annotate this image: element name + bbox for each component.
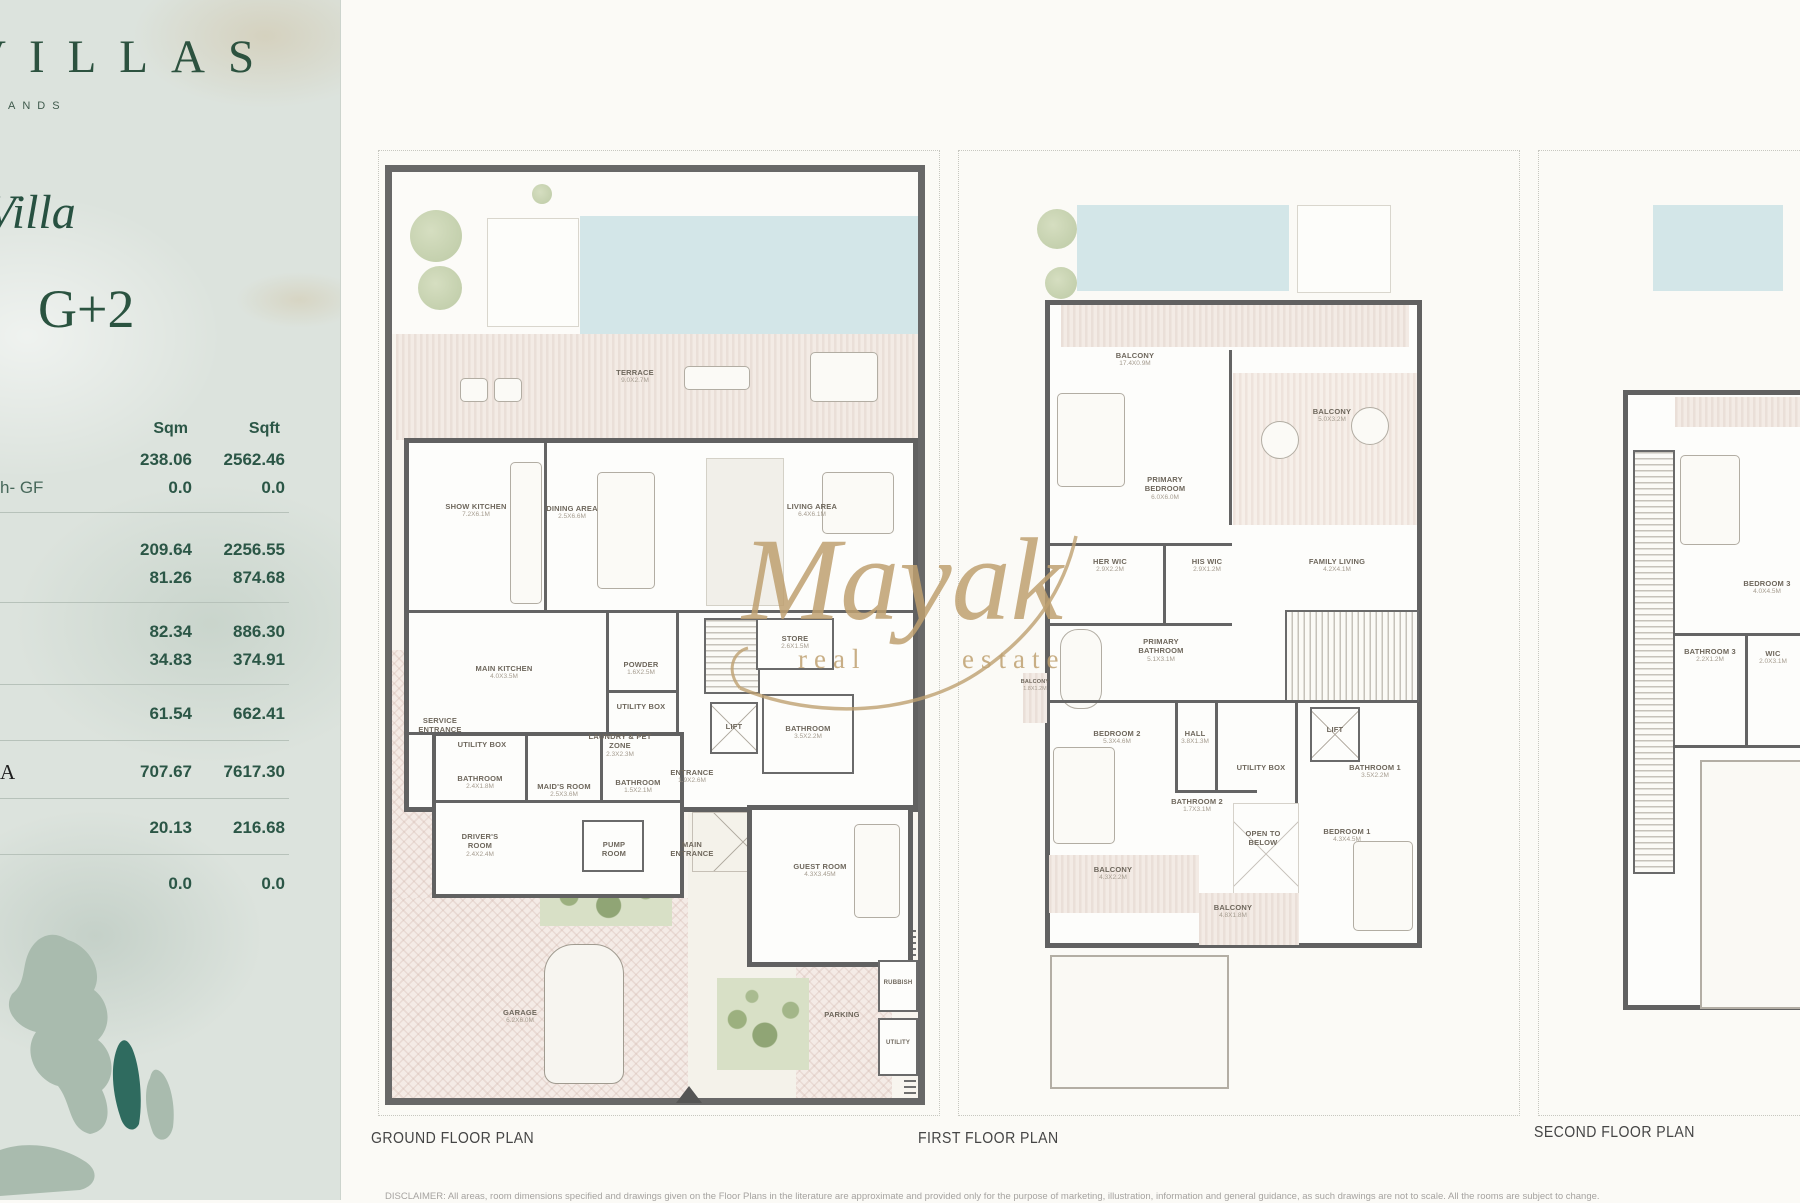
row-label-fragment: h- GF <box>0 478 43 498</box>
pool <box>1077 205 1289 291</box>
furniture-sketch <box>810 352 878 402</box>
room-label-garage: GARAGE6.2X6.0M <box>478 1008 562 1026</box>
pool <box>580 216 918 334</box>
room-label-terrace: TERRACE 9.0X2.7M <box>593 368 677 386</box>
first-plan-title: FIRST FLOOR PLAN <box>918 1130 1059 1148</box>
island-shape <box>9 935 112 1134</box>
room-label-utility-box-2: UTILITY BOX <box>452 740 512 749</box>
dining-table-sketch <box>597 472 655 589</box>
roof-terrace-outline <box>1700 760 1800 1009</box>
interior-wall <box>1050 623 1232 626</box>
area-table: Sqm Sqft 238.06 2562.46 h- GF 0.0 0.0 20… <box>0 0 340 930</box>
room-label-pump-room: PUMP ROOM <box>592 840 636 859</box>
floorplan-brochure-page: { "sidebar": { "logo_text": "VILLAS", "l… <box>0 0 1800 1200</box>
room-label-bedroom-3: BEDROOM 34.0X4.5M <box>1725 579 1800 597</box>
interior-wall <box>1295 703 1298 803</box>
room-label-powder: POWDER1.6X2.5M <box>599 660 683 678</box>
stairs <box>1633 450 1675 874</box>
room-label-balcony-bl: BALCONY4.3X2.2M <box>1071 865 1155 883</box>
entrance-arrow-marker <box>676 1086 702 1103</box>
ground-plan: TERRACE 9.0X2.7M SHOW KITCHEN7.2X6.1M DI… <box>392 172 918 1098</box>
islands-map <box>0 928 210 1200</box>
pavilion-sketch <box>1297 205 1391 293</box>
room-label-balcony-bc: BALCONY4.8X1.8M <box>1191 903 1275 921</box>
tree-icon <box>410 210 462 262</box>
lift-shaft <box>1310 707 1360 762</box>
furniture-sketch <box>684 366 750 390</box>
furniture-sketch <box>494 378 522 402</box>
table-divider <box>0 602 289 603</box>
tree-icon <box>532 184 552 204</box>
table-row: 209.64 2256.55 <box>0 540 288 558</box>
kitchen-island-sketch <box>510 462 542 604</box>
interior-wall <box>1215 703 1218 793</box>
room-label-family-living: FAMILY LIVING4.2X4.1M <box>1295 557 1379 575</box>
disclaimer-text: DISCLAIMER: All areas, room dimensions s… <box>385 1191 1800 1203</box>
room-label-bedroom-1: BEDROOM 14.3X4.5M <box>1305 827 1389 845</box>
room-label-utility: UTILITY <box>878 1040 918 1048</box>
bed-sketch <box>1057 393 1125 487</box>
ground-plan-title: GROUND FLOOR PLAN <box>371 1130 534 1148</box>
interior-wall <box>525 736 528 800</box>
bed-sketch <box>1680 455 1740 545</box>
room-label-service-entrance: SERVICE ENTRANCE <box>412 716 468 735</box>
room-label-her-wic: HER WIC2.9X2.2M <box>1068 557 1152 575</box>
interior-wall <box>1175 790 1257 793</box>
media-wall-sketch <box>706 458 784 606</box>
interior-wall <box>1050 543 1232 546</box>
table-row: 82.34 886.30 <box>0 622 288 640</box>
interior-wall <box>1673 745 1800 748</box>
room-label-bathroom-gf: BATHROOM3.5X2.2M <box>766 724 850 742</box>
room-label-lift: LIFT <box>714 722 754 731</box>
table-row: 0.0 0.0 <box>0 874 288 892</box>
bed-sketch <box>1053 747 1115 844</box>
room-label-rubbish: RUBBISH <box>878 980 918 988</box>
room-label-primary-bedroom: PRIMARY BEDROOM6.0X6.0M <box>1135 475 1195 502</box>
pavilion-sketch <box>487 218 579 327</box>
room-label-balcony-right: BALCONY5.0X3.2M <box>1290 407 1374 425</box>
room-label-bedroom-2: BEDROOM 25.3X4.6M <box>1075 729 1159 747</box>
first-plan: BALCONY17.4X0.9M PRIMARY BEDROOM6.0X6.0M… <box>965 155 1505 1105</box>
open-to-below-void <box>1233 803 1299 905</box>
balcony-deck <box>1049 855 1199 913</box>
room-label-bathroom-1: BATHROOM 13.5X2.2M <box>1345 763 1405 781</box>
table-divider <box>0 854 289 855</box>
interior-wall <box>544 443 547 611</box>
pool <box>1653 205 1783 291</box>
room-label-drivers-room: DRIVER'S ROOM2.4X2.4M <box>450 832 510 859</box>
stairs <box>704 618 760 694</box>
room-label-wic: WIC2.0X3.1M <box>1751 649 1795 667</box>
room-label-dining: DINING AREA2.5X6.6M <box>530 504 614 522</box>
stairs <box>1285 610 1419 702</box>
room-label-guest-room: GUEST ROOM4.3X3.45M <box>778 862 862 880</box>
interior-wall <box>1673 633 1800 636</box>
room-label-open-to-below: OPEN TO BELOW <box>1238 829 1288 848</box>
planting-patch <box>717 978 809 1070</box>
interior-wall <box>436 800 680 803</box>
room-label-utility-box: UTILITY BOX <box>616 702 666 711</box>
interior-wall <box>606 690 676 693</box>
room-label-his-wic: HIS WIC2.9X1.2M <box>1165 557 1249 575</box>
lounge-chair-sketch <box>1261 421 1299 459</box>
interior-wall <box>1745 636 1748 746</box>
table-divider <box>0 798 289 799</box>
room-label-living: LIVING AREA6.4X6.1M <box>770 502 854 520</box>
room-label-utility-box: UTILITY BOX <box>1236 763 1286 772</box>
table-row: h- GF 0.0 0.0 <box>0 478 288 496</box>
table-row-total: A 707.67 7617.30 <box>0 762 288 780</box>
room-label-store: STORE2.6X1.5M <box>753 634 837 652</box>
room-label-parking: PARKING <box>800 1010 884 1019</box>
balcony-deck <box>1061 305 1409 347</box>
second-plan: BEDROOM 34.0X4.5M BATHROOM 32.2X1.2M WIC… <box>1545 155 1800 1105</box>
paving-hatch <box>392 898 692 1098</box>
room-label-show-kitchen: SHOW KITCHEN7.2X6.1M <box>434 502 518 520</box>
room-label-main-kitchen: MAIN KITCHEN4.0X3.5M <box>462 664 546 682</box>
tree-icon <box>1045 267 1077 299</box>
interior-wall <box>1229 350 1232 525</box>
room-label-bathroom-2: BATHROOM 21.7X3.1M <box>1167 797 1227 815</box>
table-divider <box>0 740 289 741</box>
col-header-sqm: Sqm <box>153 420 188 438</box>
table-divider <box>0 684 289 685</box>
furniture-sketch <box>460 378 488 402</box>
tree-icon <box>1037 209 1077 249</box>
table-row: 81.26 874.68 <box>0 568 288 586</box>
bathtub-sketch <box>1060 629 1102 709</box>
col-header-sqft: Sqft <box>249 420 280 438</box>
bed-sketch <box>1353 841 1413 931</box>
room-label-primary-bathroom: PRIMARY BATHROOM5.1X3.1M <box>1131 637 1191 664</box>
sidebar: VILLAS ANDS Villa G+2 Sqm Sqft 238.06 25… <box>0 0 341 1200</box>
room-label-balcony-left: BALCONY1.8X1.2M <box>1015 679 1055 693</box>
room-label-lift: LIFT <box>1315 725 1355 734</box>
room-label-bathroom-3: BATHROOM 32.2X1.2M <box>1682 647 1738 665</box>
highlighted-island-shape <box>113 1040 141 1129</box>
balcony-deck <box>1233 373 1417 525</box>
room-label-main-entrance: MAIN ENTRANCE <box>662 840 722 859</box>
room-label-bathroom-maid: BATHROOM2.4X1.8M <box>438 774 522 792</box>
row-label-fragment: A <box>0 760 15 785</box>
terrace-deck <box>1675 397 1800 427</box>
room-label-maids-room: MAID'S ROOM2.5X3.6M <box>536 782 592 800</box>
interior-wall <box>1175 703 1178 793</box>
room-label-balcony-top: BALCONY17.4X0.9M <box>1093 351 1177 369</box>
table-row: 238.06 2562.46 <box>0 450 288 468</box>
table-divider <box>0 512 289 513</box>
island-shape <box>0 1145 95 1196</box>
room-label-hall: HALL3.8X1.3M <box>1173 729 1217 747</box>
room-label-bathroom-small: BATHROOM1.5X2.1M <box>608 778 668 796</box>
island-shape <box>146 1070 174 1140</box>
room-label-laundry: LAUNDRY & PET ZONE2.3X2.3M <box>585 732 655 759</box>
table-row: 61.54 662.41 <box>0 704 288 722</box>
interior-wall <box>1050 700 1418 703</box>
second-plan-title: SECOND FLOOR PLAN <box>1534 1124 1695 1142</box>
table-row: 20.13 216.68 <box>0 818 288 836</box>
void-below-outline <box>1050 955 1229 1089</box>
interior-wall <box>409 610 913 613</box>
tree-icon <box>418 266 462 310</box>
table-row: 34.83 374.91 <box>0 650 288 668</box>
table-header-row: Sqm Sqft <box>0 420 288 438</box>
